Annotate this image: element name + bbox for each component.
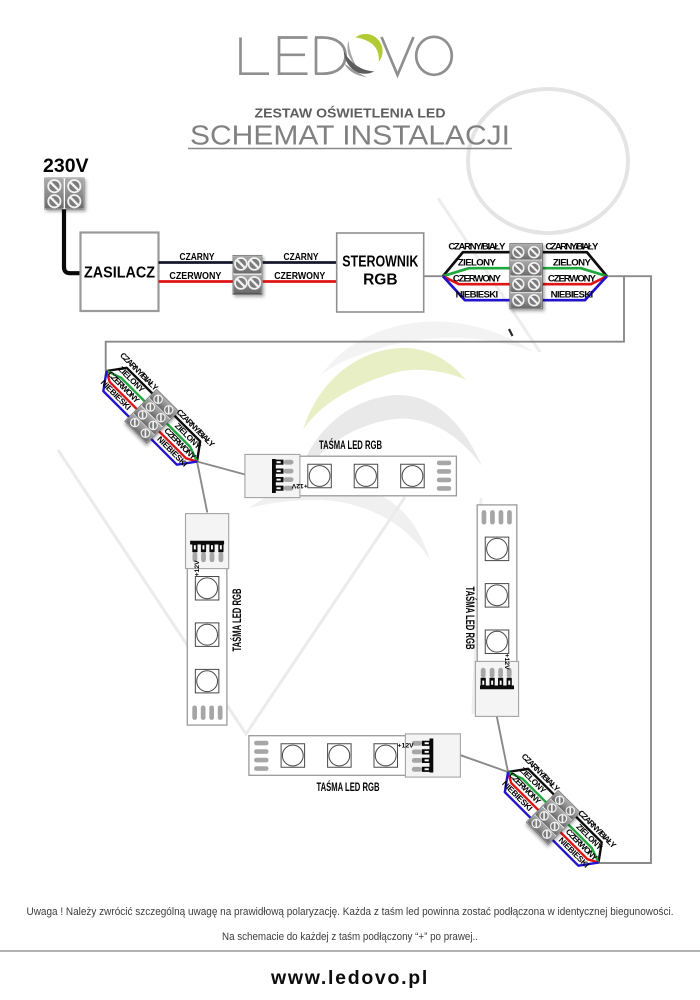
- svg-text:TAŚMA LED RGB: TAŚMA LED RGB: [319, 439, 382, 452]
- svg-text:230V: 230V: [43, 155, 89, 177]
- svg-text:CZERWONY: CZERWONY: [169, 271, 221, 282]
- svg-text:TAŚMA LED RGB: TAŚMA LED RGB: [463, 587, 476, 650]
- svg-text:Uwaga ! Należy zwrócić szczegó: Uwaga ! Należy zwrócić szczególną uwagę …: [27, 906, 674, 918]
- svg-text:CZARNY: CZARNY: [284, 252, 319, 263]
- svg-text:SCHEMAT INSTALACJI: SCHEMAT INSTALACJI: [190, 120, 510, 151]
- svg-text:www.ledovo.pl: www.ledovo.pl: [270, 967, 429, 989]
- svg-text:TAŚMA LED RGB: TAŚMA LED RGB: [317, 781, 380, 794]
- svg-text:RGB: RGB: [363, 272, 397, 289]
- svg-text:CZERWONY: CZERWONY: [274, 271, 325, 282]
- svg-text:ZASILACZ: ZASILACZ: [84, 265, 155, 282]
- svg-text:Na schemacie do każdej z taśm: Na schemacie do każdej z taśm podłączony…: [222, 931, 478, 943]
- svg-text:STEROWNIK: STEROWNIK: [342, 254, 419, 271]
- svg-text:TAŚMA LED RGB: TAŚMA LED RGB: [231, 589, 244, 652]
- svg-text:ZESTAW OŚWIETLENIA LED: ZESTAW OŚWIETLENIA LED: [255, 106, 446, 121]
- svg-text:CZARNY: CZARNY: [180, 252, 215, 263]
